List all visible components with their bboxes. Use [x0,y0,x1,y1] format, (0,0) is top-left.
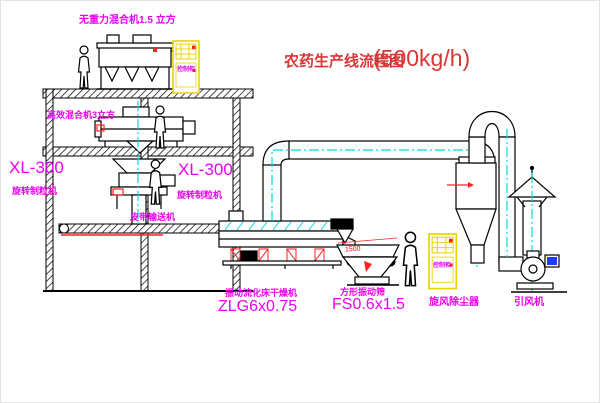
label-gravity-mixer: 无重力混合机1.5 立方 [79,16,176,26]
flow-diagram-canvas: 农药生产线流程图 (500kg/h) 无重力混合机1.5 立方 高效混合机3立方… [0,0,600,403]
gravity-free-mixer [97,35,183,89]
control-cabinet-2 [429,234,456,289]
label-cabinet-2: 控制柜 [433,263,451,269]
person-figure [79,46,90,88]
person-figure [403,232,417,285]
label-screen-model: FS0.6x1.5 [332,297,405,313]
label-granulator-left-name: 旋转制粒机 [12,187,57,196]
label-cyclone: 旋风除尘器 [429,298,479,308]
label-granulator-left-model: XL-300 [9,159,64,176]
label-fan: 引风机 [514,298,544,308]
label-dryer-model: ZLG6x0.75 [218,299,297,315]
label-high-eff-mixer: 高效混合机3立方 [47,111,115,120]
vibrating-screen [331,219,399,285]
label-granulator-right-name: 旋转制粒机 [177,191,222,200]
label-belt-conveyor: 皮带输送机 [130,213,175,222]
person-figure [155,106,166,148]
person-figure [150,160,162,204]
label-granulator-right-model: XL-300 [178,161,233,178]
label-cabinet-1: 控制柜 [177,67,195,73]
label-dryer-name: 振动流化床干燥机 [225,289,297,298]
dimension-screen-width: 1500 [345,245,361,253]
diagram-title-capacity: (500kg/h) [373,47,470,70]
